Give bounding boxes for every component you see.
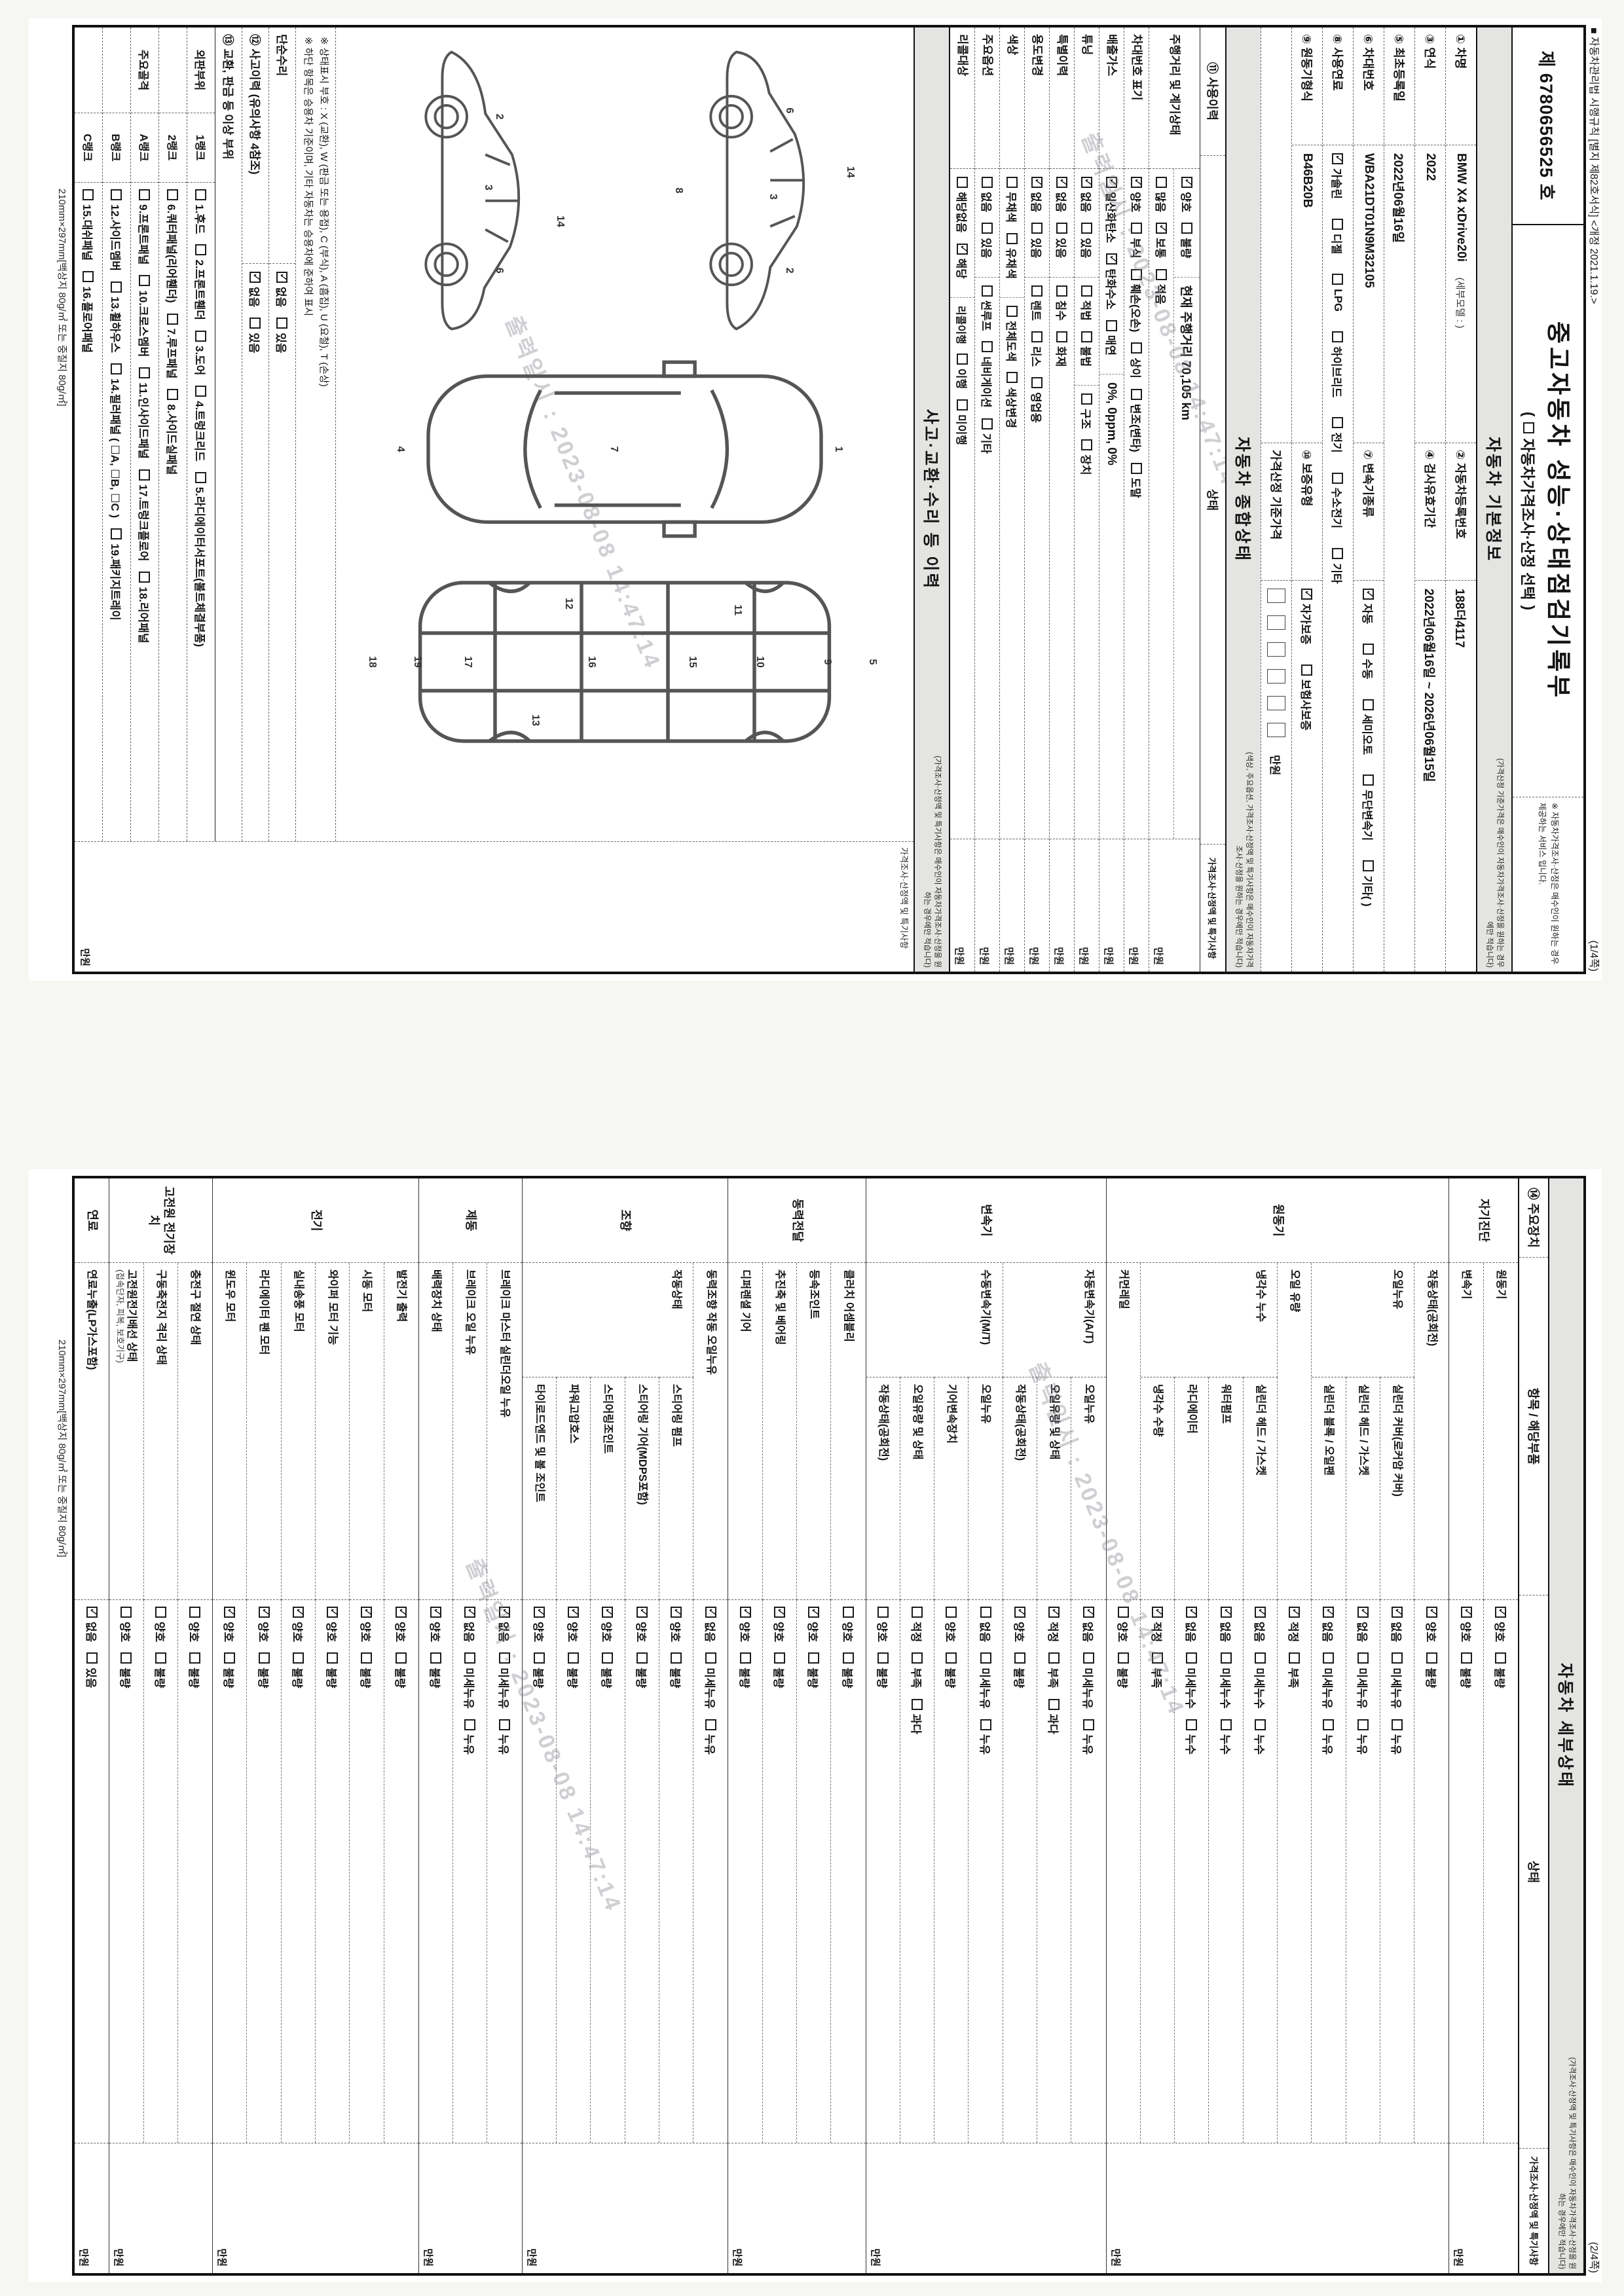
checkbox[interactable] — [637, 1652, 648, 1664]
option-양호[interactable]: 양호 — [1492, 1607, 1509, 1642]
option-보험사보증[interactable]: 보험사보증 — [1299, 665, 1316, 731]
checkbox[interactable] — [293, 1607, 304, 1618]
option-변조(변타)[interactable]: 변조(변타) — [1128, 389, 1145, 452]
option-누수[interactable]: 누수 — [1252, 1719, 1268, 1755]
option-없음[interactable]: 없음 — [1320, 1607, 1337, 1642]
option-누유[interactable]: 누유 — [1389, 1719, 1405, 1755]
checkbox[interactable] — [912, 1607, 923, 1618]
checkbox[interactable] — [155, 1652, 166, 1664]
checkbox[interactable] — [1131, 463, 1142, 474]
checkbox[interactable] — [1156, 177, 1167, 188]
checkbox[interactable] — [196, 244, 207, 255]
checkbox[interactable] — [250, 318, 261, 329]
checkbox[interactable] — [1056, 177, 1067, 188]
checkbox[interactable] — [705, 1607, 716, 1618]
option-적정[interactable]: 적정 — [1149, 1607, 1166, 1642]
option-양호[interactable]: 양호 — [634, 1607, 650, 1642]
checkbox[interactable] — [361, 1652, 372, 1664]
checkbox[interactable] — [259, 1607, 270, 1618]
checkbox[interactable] — [1152, 1607, 1163, 1618]
option-전기[interactable]: 전기 — [1330, 417, 1346, 452]
checkbox[interactable] — [980, 1607, 991, 1618]
checkbox[interactable] — [111, 363, 122, 374]
checkbox[interactable] — [139, 275, 151, 286]
checkbox[interactable] — [1186, 1652, 1197, 1664]
option-불량[interactable]: 불량 — [565, 1652, 581, 1688]
option-양호[interactable]: 양호 — [324, 1607, 341, 1642]
option-불량[interactable]: 불량 — [634, 1652, 650, 1688]
option-없음[interactable]: 없음 — [274, 272, 291, 307]
checkbox[interactable] — [499, 1719, 510, 1730]
option-양호[interactable]: 양호 — [565, 1607, 581, 1642]
option-양호[interactable]: 양호 — [531, 1607, 547, 1642]
checkbox[interactable] — [602, 1652, 613, 1664]
checkbox[interactable] — [808, 1607, 819, 1618]
checkbox[interactable] — [1363, 774, 1375, 786]
option-과다[interactable]: 과다 — [1046, 1699, 1062, 1734]
option-매연[interactable]: 매연 — [1103, 320, 1120, 355]
checkbox[interactable] — [1083, 1719, 1094, 1730]
option-미세누유[interactable]: 미세누유 — [1080, 1652, 1097, 1709]
option-양호[interactable]: 양호 — [840, 1607, 857, 1642]
option-기타( )[interactable]: 기타( ) — [1361, 860, 1377, 906]
option-불량[interactable]: 불량 — [875, 1652, 891, 1688]
checkbox[interactable] — [259, 1652, 270, 1664]
option-적음[interactable]: 적음 — [1153, 269, 1170, 304]
checkbox[interactable] — [1131, 269, 1142, 280]
checkbox[interactable] — [224, 1607, 235, 1618]
checkbox[interactable] — [1333, 153, 1344, 164]
option-양호[interactable]: 양호 — [221, 1607, 238, 1642]
option-이행[interactable]: 이행 — [954, 354, 970, 389]
option-18.리어패널[interactable]: 18.리어패널 — [137, 572, 153, 643]
option-있음[interactable]: 있음 — [1054, 223, 1070, 258]
option-없음[interactable]: 없음 — [979, 177, 995, 212]
option-불량[interactable]: 불량 — [1492, 1652, 1509, 1688]
option-5.라디에이터서포트(볼트체결부품)[interactable]: 5.라디에이터서포트(볼트체결부품) — [193, 472, 210, 647]
checkbox[interactable] — [155, 1607, 166, 1618]
checkbox[interactable] — [196, 472, 207, 483]
option-없음[interactable]: 없음 — [978, 1607, 994, 1642]
checkbox[interactable] — [774, 1652, 785, 1664]
option-10.크로스멤버[interactable]: 10.크로스멤버 — [137, 275, 153, 357]
checkbox[interactable] — [957, 177, 968, 188]
checkbox[interactable] — [1333, 274, 1344, 285]
checkbox[interactable] — [111, 189, 122, 200]
checkbox[interactable] — [1106, 320, 1117, 331]
option-9.프론트패널[interactable]: 9.프론트패널 — [137, 189, 153, 264]
checkbox[interactable] — [1333, 417, 1344, 428]
checkbox[interactable] — [396, 1607, 407, 1618]
option-불량[interactable]: 불량 — [668, 1652, 684, 1688]
option-부족[interactable]: 부족 — [1046, 1652, 1062, 1688]
checkbox[interactable] — [1181, 223, 1192, 234]
checkbox[interactable] — [396, 1652, 407, 1664]
checkbox[interactable] — [1255, 1607, 1266, 1618]
checkbox[interactable] — [1056, 285, 1067, 297]
option-많음[interactable]: 많음 — [1153, 177, 1170, 212]
option-있음[interactable]: 있음 — [1079, 223, 1095, 258]
checkbox[interactable] — [139, 572, 151, 583]
checkbox[interactable] — [196, 331, 207, 342]
checkbox[interactable] — [1333, 331, 1344, 342]
option-누유[interactable]: 누유 — [978, 1719, 994, 1755]
option-기타[interactable]: 기타 — [1330, 548, 1346, 583]
checkbox[interactable] — [1048, 1652, 1060, 1664]
checkbox[interactable] — [464, 1607, 475, 1618]
option-불량[interactable]: 불량 — [118, 1652, 134, 1688]
option-없음[interactable]: 없음 — [703, 1607, 719, 1642]
checkbox[interactable] — [1006, 372, 1018, 383]
checkbox[interactable] — [1156, 223, 1167, 234]
option-기타[interactable]: 기타 — [979, 418, 995, 454]
checkbox[interactable] — [327, 1652, 338, 1664]
checkbox[interactable] — [1495, 1652, 1506, 1664]
option-양호[interactable]: 양호 — [771, 1607, 788, 1642]
checkbox[interactable] — [980, 1652, 991, 1664]
option-16.플로어패널[interactable]: 16.플로어패널 — [81, 271, 97, 353]
option-누유[interactable]: 누유 — [462, 1719, 478, 1755]
option-양호[interactable]: 양호 — [737, 1607, 754, 1642]
option-적정[interactable]: 적정 — [909, 1607, 925, 1642]
checkbox[interactable] — [1357, 1719, 1369, 1730]
checkbox[interactable] — [499, 1607, 510, 1618]
checkbox[interactable] — [1131, 177, 1142, 188]
option-양호[interactable]: 양호 — [668, 1607, 684, 1642]
checkbox[interactable] — [980, 1719, 991, 1730]
option-4.트렁크리드[interactable]: 4.트렁크리드 — [193, 386, 210, 461]
checkbox[interactable] — [1031, 223, 1043, 234]
checkbox[interactable] — [1106, 253, 1117, 264]
checkbox[interactable] — [1323, 1652, 1334, 1664]
checkbox[interactable] — [1186, 1719, 1197, 1730]
option-양호[interactable]: 양호 — [187, 1607, 203, 1642]
option-불량[interactable]: 불량 — [1179, 223, 1195, 258]
option-누수[interactable]: 누수 — [1218, 1719, 1234, 1755]
option-미세누수[interactable]: 미세누수 — [1218, 1652, 1234, 1709]
checkbox[interactable] — [1106, 177, 1117, 188]
checkbox[interactable] — [196, 386, 207, 397]
option-수소전기[interactable]: 수소전기 — [1330, 473, 1346, 529]
option-LPG[interactable]: LPG — [1331, 274, 1344, 312]
checkbox[interactable] — [1006, 306, 1018, 317]
option-상이[interactable]: 상이 — [1128, 342, 1145, 378]
checkbox[interactable] — [568, 1652, 579, 1664]
option-누유[interactable]: 누유 — [1080, 1719, 1097, 1755]
option-자가보증[interactable]: 자가보증 — [1299, 589, 1316, 645]
checkbox[interactable] — [430, 1652, 441, 1664]
option-부족[interactable]: 부족 — [1149, 1652, 1166, 1688]
checkbox[interactable] — [1221, 1607, 1232, 1618]
option-무단변속기[interactable]: 무단변속기 — [1361, 774, 1377, 841]
option-없음[interactable]: 없음 — [1029, 177, 1045, 212]
option-양호[interactable]: 양호 — [1458, 1607, 1475, 1642]
option-무채색[interactable]: 무채색 — [1004, 177, 1020, 223]
option-색상변경[interactable]: 색상변경 — [1004, 372, 1020, 428]
option-탄화수소[interactable]: 탄화수소 — [1103, 253, 1120, 310]
checkbox[interactable] — [982, 418, 993, 429]
option-불량[interactable]: 불량 — [1115, 1652, 1132, 1688]
checkbox[interactable] — [277, 272, 288, 283]
checkbox[interactable] — [1363, 699, 1375, 710]
checkbox[interactable] — [957, 244, 968, 255]
checkbox[interactable] — [1031, 177, 1043, 188]
checkbox[interactable] — [361, 1607, 372, 1618]
checkbox[interactable] — [224, 1652, 235, 1664]
checkbox[interactable] — [189, 1652, 200, 1664]
checkbox[interactable] — [1333, 548, 1344, 559]
checkbox[interactable] — [1081, 223, 1092, 234]
option-1.후드[interactable]: 1.후드 — [193, 189, 210, 234]
checkbox[interactable] — [86, 1607, 98, 1618]
option-불량[interactable]: 불량 — [187, 1652, 203, 1688]
checkbox[interactable] — [1031, 331, 1043, 342]
checkbox[interactable] — [705, 1719, 716, 1730]
checkbox[interactable] — [430, 1607, 441, 1618]
checkbox[interactable] — [277, 318, 288, 329]
option-화재[interactable]: 화재 — [1054, 331, 1070, 367]
checkbox[interactable] — [1031, 377, 1043, 388]
price-survey-select-checkbox[interactable] — [1524, 422, 1535, 433]
option-양호[interactable]: 양호 — [1128, 177, 1145, 212]
option-적정[interactable]: 적정 — [1286, 1607, 1302, 1642]
checkbox[interactable] — [111, 528, 122, 539]
checkbox[interactable] — [1081, 439, 1092, 450]
checkbox[interactable] — [1081, 177, 1092, 188]
option-불량[interactable]: 불량 — [290, 1652, 306, 1688]
checkbox[interactable] — [1156, 269, 1167, 280]
checkbox[interactable] — [293, 1652, 304, 1664]
option-썬루프[interactable]: 썬루프 — [979, 285, 995, 331]
option-적법[interactable]: 적법 — [1079, 285, 1095, 321]
checkbox[interactable] — [1333, 473, 1344, 484]
option-없음[interactable]: 없음 — [1054, 177, 1070, 212]
option-없음[interactable]: 없음 — [248, 272, 264, 307]
checkbox[interactable] — [843, 1652, 854, 1664]
checkbox[interactable] — [1131, 389, 1142, 400]
option-없음[interactable]: 없음 — [1080, 1607, 1097, 1642]
checkbox[interactable] — [1006, 177, 1018, 188]
option-불량[interactable]: 불량 — [737, 1652, 754, 1688]
option-누수[interactable]: 누수 — [1183, 1719, 1200, 1755]
option-있음[interactable]: 있음 — [274, 318, 291, 353]
option-없음[interactable]: 없음 — [1183, 1607, 1200, 1642]
option-미세누유[interactable]: 미세누유 — [462, 1652, 478, 1709]
option-불량[interactable]: 불량 — [428, 1652, 444, 1688]
checkbox[interactable] — [637, 1607, 648, 1618]
checkbox[interactable] — [1048, 1699, 1060, 1710]
option-훼손(오손)[interactable]: 훼손(오손) — [1128, 269, 1145, 333]
option-양호[interactable]: 양호 — [805, 1607, 822, 1642]
checkbox[interactable] — [1056, 223, 1067, 234]
checkbox[interactable] — [1006, 233, 1018, 244]
option-불량[interactable]: 불량 — [805, 1652, 822, 1688]
checkbox[interactable] — [1333, 219, 1344, 230]
checkbox[interactable] — [1392, 1719, 1403, 1730]
option-없음[interactable]: 없음 — [1355, 1607, 1371, 1642]
option-양호[interactable]: 양호 — [1424, 1607, 1440, 1642]
checkbox[interactable] — [111, 282, 122, 293]
checkbox[interactable] — [1014, 1607, 1025, 1618]
option-미세누유[interactable]: 미세누유 — [703, 1652, 719, 1709]
checkbox[interactable] — [168, 314, 179, 325]
option-15.대쉬패널[interactable]: 15.대쉬패널 — [81, 189, 97, 261]
option-양호[interactable]: 양호 — [428, 1607, 444, 1642]
checkbox[interactable] — [1152, 1652, 1163, 1664]
checkbox[interactable] — [1323, 1607, 1334, 1618]
checkbox[interactable] — [464, 1652, 475, 1664]
option-적정[interactable]: 적정 — [1046, 1607, 1062, 1642]
checkbox[interactable] — [168, 389, 179, 400]
option-네비게이션[interactable]: 네비게이션 — [979, 341, 995, 407]
option-미세누수[interactable]: 미세누수 — [1183, 1652, 1200, 1709]
option-유채색[interactable]: 유채색 — [1004, 233, 1020, 279]
option-보통[interactable]: 보통 — [1153, 223, 1170, 258]
checkbox[interactable] — [196, 189, 207, 200]
checkbox[interactable] — [1186, 1607, 1197, 1618]
checkbox[interactable] — [946, 1607, 957, 1618]
checkbox[interactable] — [671, 1652, 682, 1664]
option-해당없음[interactable]: 해당없음 — [954, 177, 970, 233]
base-price-input[interactable]: 만원 — [1261, 581, 1291, 972]
checkbox[interactable] — [568, 1607, 579, 1618]
option-누유[interactable]: 누유 — [1320, 1719, 1337, 1755]
option-양호[interactable]: 양호 — [290, 1607, 306, 1642]
checkbox[interactable] — [1363, 589, 1375, 600]
option-2.프론트휀더[interactable]: 2.프론트휀더 — [193, 244, 210, 319]
checkbox[interactable] — [1461, 1652, 1472, 1664]
checkbox[interactable] — [912, 1652, 923, 1664]
option-14.필러패널 ( ☐A, ☐B, ☐C )[interactable]: 14.필러패널 ( ☐A, ☐B, ☐C ) — [109, 363, 125, 518]
option-불량[interactable]: 불량 — [1012, 1652, 1028, 1688]
option-불량[interactable]: 불량 — [599, 1652, 616, 1688]
option-있음[interactable]: 있음 — [84, 1652, 100, 1688]
option-19.패키지트레이[interactable]: 19.패키지트레이 — [109, 528, 125, 620]
option-양호[interactable]: 양호 — [358, 1607, 375, 1642]
checkbox[interactable] — [843, 1607, 854, 1618]
option-없음[interactable]: 없음 — [1079, 177, 1095, 212]
checkbox[interactable] — [327, 1607, 338, 1618]
checkbox[interactable] — [120, 1607, 132, 1618]
option-없음[interactable]: 없음 — [1218, 1607, 1234, 1642]
checkbox[interactable] — [1081, 393, 1092, 405]
checkbox[interactable] — [774, 1607, 785, 1618]
checkbox[interactable] — [1302, 665, 1313, 676]
option-불량[interactable]: 불량 — [771, 1652, 788, 1688]
option-불량[interactable]: 불량 — [1424, 1652, 1440, 1688]
option-미세누유[interactable]: 미세누유 — [1320, 1652, 1337, 1709]
checkbox[interactable] — [1048, 1607, 1060, 1618]
checkbox[interactable] — [602, 1607, 613, 1618]
option-부족[interactable]: 부족 — [909, 1652, 925, 1688]
option-미세누유[interactable]: 미세누유 — [978, 1652, 994, 1709]
checkbox[interactable] — [1118, 1652, 1129, 1664]
checkbox[interactable] — [1221, 1652, 1232, 1664]
option-장치[interactable]: 장치 — [1079, 439, 1095, 475]
option-누유[interactable]: 누유 — [1355, 1719, 1371, 1755]
option-누유[interactable]: 누유 — [703, 1719, 719, 1755]
checkbox[interactable] — [1056, 331, 1067, 342]
checkbox[interactable] — [534, 1652, 545, 1664]
option-불량[interactable]: 불량 — [256, 1652, 272, 1688]
option-없음[interactable]: 없음 — [462, 1607, 478, 1642]
option-불량[interactable]: 불량 — [1458, 1652, 1475, 1688]
checkbox[interactable] — [139, 469, 151, 481]
checkbox[interactable] — [464, 1719, 475, 1730]
checkbox[interactable] — [1181, 177, 1192, 188]
option-미세누수[interactable]: 미세누수 — [1252, 1652, 1268, 1709]
checkbox[interactable] — [499, 1652, 510, 1664]
checkbox[interactable] — [1081, 285, 1092, 297]
checkbox[interactable] — [1392, 1607, 1403, 1618]
option-양호[interactable]: 양호 — [1012, 1607, 1028, 1642]
option-없음[interactable]: 없음 — [1252, 1607, 1268, 1642]
checkbox[interactable] — [139, 189, 151, 200]
option-양호[interactable]: 양호 — [1115, 1607, 1132, 1642]
option-해당[interactable]: 해당 — [954, 244, 970, 279]
checkbox[interactable] — [83, 189, 94, 200]
option-양호[interactable]: 양호 — [118, 1607, 134, 1642]
checkbox[interactable] — [1363, 644, 1375, 655]
checkbox[interactable] — [1031, 285, 1043, 297]
option-양호[interactable]: 양호 — [599, 1607, 616, 1642]
checkbox[interactable] — [1083, 1652, 1094, 1664]
option-양호[interactable]: 양호 — [1179, 177, 1195, 212]
checkbox[interactable] — [1289, 1607, 1300, 1618]
checkbox[interactable] — [1363, 860, 1375, 871]
checkbox[interactable] — [1461, 1607, 1472, 1618]
option-하이브리드[interactable]: 하이브리드 — [1330, 331, 1346, 397]
option-13.휠하우스[interactable]: 13.휠하우스 — [109, 282, 125, 353]
checkbox[interactable] — [1426, 1652, 1437, 1664]
option-수동[interactable]: 수동 — [1361, 644, 1377, 679]
checkbox[interactable] — [120, 1652, 132, 1664]
checkbox[interactable] — [86, 1652, 98, 1664]
option-미이행[interactable]: 미이행 — [954, 399, 970, 445]
option-17.트렁크플로어[interactable]: 17.트렁크플로어 — [137, 469, 153, 561]
option-3.도어[interactable]: 3.도어 — [193, 331, 210, 375]
option-디젤[interactable]: 디젤 — [1330, 219, 1346, 254]
option-없음[interactable]: 없음 — [84, 1607, 100, 1642]
option-양호[interactable]: 양호 — [393, 1607, 409, 1642]
checkbox[interactable] — [1255, 1719, 1266, 1730]
checkbox[interactable] — [982, 177, 993, 188]
checkbox[interactable] — [1255, 1652, 1266, 1664]
option-불량[interactable]: 불량 — [531, 1652, 547, 1688]
option-렌트[interactable]: 렌트 — [1029, 285, 1045, 321]
checkbox[interactable] — [1426, 1607, 1437, 1618]
checkbox[interactable] — [740, 1607, 751, 1618]
checkbox[interactable] — [1118, 1607, 1129, 1618]
option-불량[interactable]: 불량 — [840, 1652, 857, 1688]
checkbox[interactable] — [168, 189, 179, 200]
option-6.쿼터패널(리어휀더)[interactable]: 6.쿼터패널(리어휀더) — [165, 189, 181, 303]
option-과다[interactable]: 과다 — [909, 1699, 925, 1734]
option-양호[interactable]: 양호 — [256, 1607, 272, 1642]
option-없음[interactable]: 없음 — [1389, 1607, 1405, 1642]
checkbox[interactable] — [808, 1652, 819, 1664]
checkbox[interactable] — [982, 285, 993, 297]
option-불량[interactable]: 불량 — [358, 1652, 375, 1688]
checkbox[interactable] — [912, 1699, 923, 1710]
option-전체도색[interactable]: 전체도색 — [1004, 306, 1020, 362]
checkbox[interactable] — [1357, 1652, 1369, 1664]
checkbox[interactable] — [250, 272, 261, 283]
option-있음[interactable]: 있음 — [248, 318, 264, 353]
option-양호[interactable]: 양호 — [943, 1607, 959, 1642]
checkbox[interactable] — [1323, 1719, 1334, 1730]
option-불량[interactable]: 불량 — [393, 1652, 409, 1688]
